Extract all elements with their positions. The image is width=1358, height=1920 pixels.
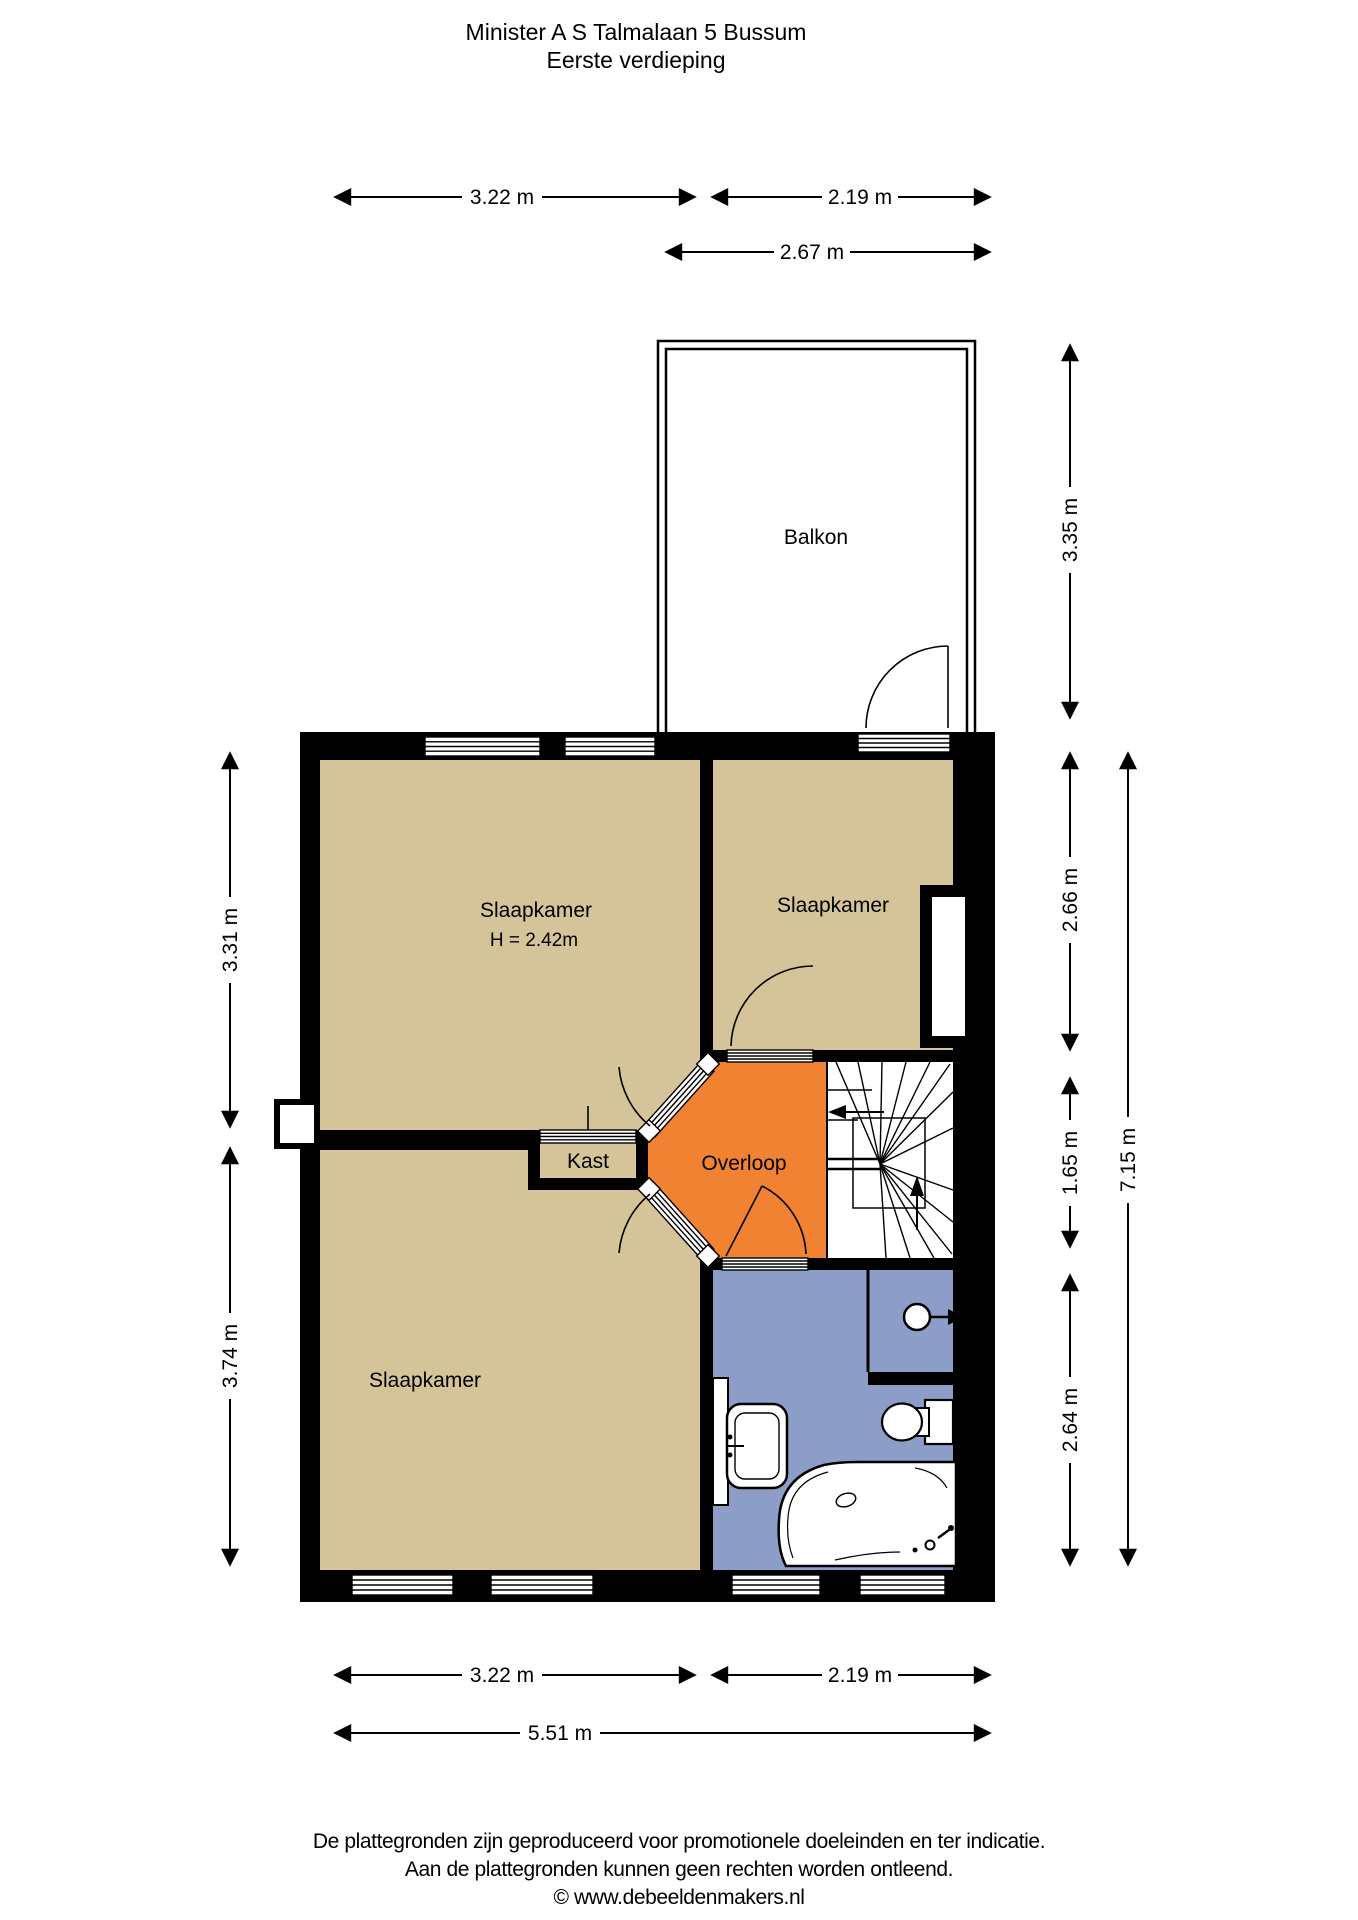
dim-bottom-left: 3.22 m (470, 1664, 534, 1687)
window-top-b (565, 737, 655, 756)
dim-right-bottom: 2.64 m (1059, 1388, 1082, 1452)
dim-top-left: 3.22 m (470, 186, 534, 209)
dim-right-middle: 1.65 m (1059, 1131, 1082, 1195)
window-bathroom-a (732, 1575, 820, 1595)
label-slaapkamer-top-right: Slaapkamer (777, 894, 889, 917)
disclaimer-line-1: De plattegronden zijn geproduceerd voor … (0, 1828, 1358, 1856)
label-balkon: Balkon (784, 526, 848, 549)
dim-left-bottom: 3.74 m (219, 1324, 242, 1388)
dim-balcony-depth: 3.35 m (1059, 498, 1082, 562)
floor-plan-canvas: Balkon Slaapkamer H = 2.42m Slaapkamer S… (0, 0, 1358, 1920)
label-overloop: Overloop (701, 1152, 786, 1175)
window-bathroom-b (860, 1575, 945, 1595)
window-top-a (425, 737, 540, 756)
dim-bottom-total: 5.51 m (528, 1722, 592, 1745)
dim-left-top: 3.31 m (219, 908, 242, 972)
dim-right-top: 2.66 m (1059, 868, 1082, 932)
disclaimer: De plattegronden zijn geproduceerd voor … (0, 1828, 1358, 1912)
label-slaapkamer-top-left: Slaapkamer (480, 899, 592, 922)
disclaimer-line-2: Aan de plattegronden kunnen geen rechten… (0, 1856, 1358, 1884)
chimney-niche (280, 1105, 314, 1143)
dim-top-right: 2.19 m (828, 186, 892, 209)
copyright: © www.debeeldenmakers.nl (0, 1884, 1358, 1912)
wall-niche (932, 897, 965, 1036)
window-bottom-a (352, 1575, 453, 1595)
bathtub-icon (779, 1462, 956, 1566)
balcony-door-sill (858, 734, 950, 752)
label-slaapkamer-bottom-left: Slaapkamer (369, 1369, 481, 1392)
bathroom-door-sill (722, 1258, 808, 1270)
label-kast: Kast (567, 1150, 609, 1173)
dim-bottom-right: 2.19 m (828, 1664, 892, 1687)
kast-opening-sill (540, 1130, 636, 1143)
dim-balcony-width: 2.67 m (780, 241, 844, 264)
room-slaapkamer-bottom-left (320, 1150, 700, 1570)
label-ceiling-height: H = 2.42m (490, 930, 578, 951)
bedroom-door-sill (727, 1050, 813, 1062)
floorplan-page: Minister A S Talmalaan 5 Bussum Eerste v… (0, 0, 1358, 1920)
window-bottom-b (491, 1575, 593, 1595)
balcony-door-arc (866, 646, 948, 728)
dim-right-total: 7.15 m (1117, 1128, 1140, 1192)
